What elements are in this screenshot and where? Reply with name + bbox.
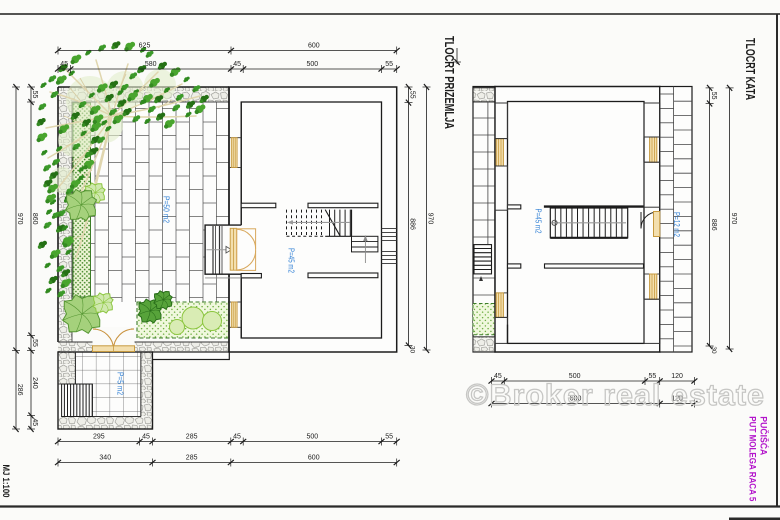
svg-text:MJ 1:100: MJ 1:100 <box>0 465 11 498</box>
svg-text:P=12 m2: P=12 m2 <box>672 212 681 237</box>
svg-text:45: 45 <box>31 418 38 426</box>
svg-text:TLOCRT PRIZEMLJA: TLOCRT PRIZEMLJA <box>442 36 457 129</box>
svg-text:P=45 m2: P=45 m2 <box>287 248 296 273</box>
svg-text:P=5 m2: P=5 m2 <box>116 372 125 395</box>
svg-text:45: 45 <box>60 61 68 68</box>
svg-text:860: 860 <box>31 213 38 225</box>
svg-text:600: 600 <box>308 42 320 49</box>
svg-text:45: 45 <box>142 433 150 440</box>
svg-text:PUT MOLEGA RACA 5: PUT MOLEGA RACA 5 <box>747 416 758 502</box>
svg-text:55: 55 <box>710 92 717 100</box>
svg-text:886: 886 <box>710 219 717 231</box>
svg-text:580: 580 <box>145 61 157 68</box>
svg-text:285: 285 <box>186 433 198 440</box>
svg-text:TLOCRT KATA: TLOCRT KATA <box>743 38 758 100</box>
svg-text:30: 30 <box>409 346 416 354</box>
svg-text:55: 55 <box>31 339 38 347</box>
svg-text:286: 286 <box>16 384 23 396</box>
svg-text:500: 500 <box>307 61 319 68</box>
svg-text:240: 240 <box>31 377 38 389</box>
svg-text:500: 500 <box>307 433 319 440</box>
svg-text:970: 970 <box>427 213 434 225</box>
svg-text:©Broker real estate: ©Broker real estate <box>466 379 765 412</box>
svg-text:55: 55 <box>409 91 416 99</box>
svg-text:970: 970 <box>730 213 737 225</box>
svg-text:30: 30 <box>710 346 717 354</box>
svg-text:55: 55 <box>385 433 393 440</box>
svg-text:55: 55 <box>385 61 393 68</box>
svg-text:P=50 m2: P=50 m2 <box>162 196 171 223</box>
svg-text:295: 295 <box>93 433 105 440</box>
svg-text:55: 55 <box>31 91 38 99</box>
svg-text:886: 886 <box>409 218 416 230</box>
svg-text:45: 45 <box>233 433 241 440</box>
svg-text:285: 285 <box>186 454 198 461</box>
svg-text:600: 600 <box>308 454 320 461</box>
svg-text:P=45 m2: P=45 m2 <box>534 209 543 234</box>
svg-text:970: 970 <box>16 213 23 225</box>
svg-text:45: 45 <box>233 61 241 68</box>
svg-text:340: 340 <box>99 454 111 461</box>
svg-text:625: 625 <box>139 42 151 49</box>
svg-text:PUČIŠĆA: PUČIŠĆA <box>758 416 770 455</box>
